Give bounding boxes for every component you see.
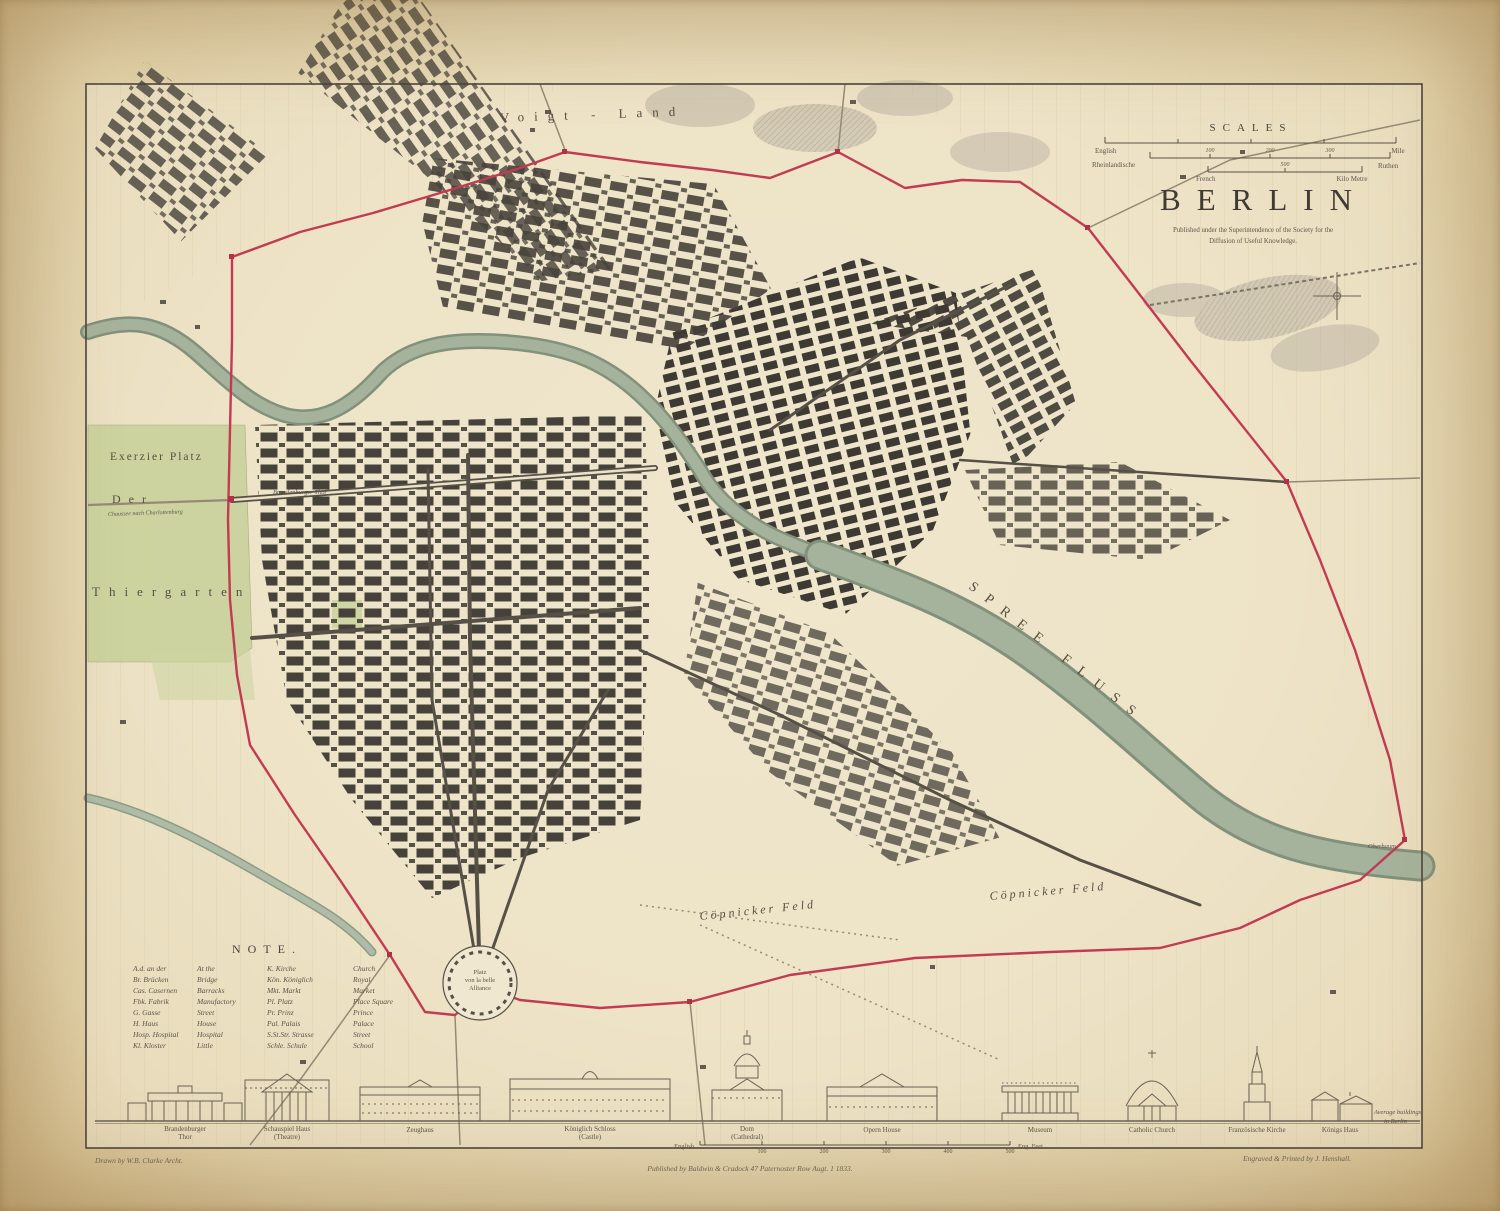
building-label: (Cathedral)	[731, 1133, 764, 1141]
feet-scale-tick: 500	[1006, 1149, 1015, 1155]
scales-heading: SCALES	[1210, 122, 1293, 134]
building-label: Thor	[178, 1133, 192, 1141]
building-label: (Castle)	[579, 1133, 602, 1141]
note-meaning: At the	[197, 964, 267, 973]
note-meaning: Little	[197, 1041, 267, 1050]
scale-metres-n1: 500	[1281, 162, 1290, 168]
label-der: Der	[112, 492, 154, 506]
scale-ruthen-n2: 200	[1266, 148, 1275, 154]
note-meaning: Barracks	[197, 986, 267, 995]
note-abbr: Mkt. Markt	[267, 986, 353, 995]
building-label: Museum	[1028, 1126, 1053, 1134]
note-abbr: H. Haus	[133, 1019, 197, 1028]
note-meaning: Prince	[353, 1008, 401, 1017]
note-abbr: G. Gasse	[133, 1008, 197, 1017]
note-abbr: A.d. an der	[133, 964, 197, 973]
building-label: Opern House	[863, 1126, 900, 1134]
note-abbr: Hosp. Hospital	[133, 1030, 197, 1039]
map-sheet: Voigt - Land Exerzier Platz Der Thiergar…	[0, 0, 1500, 1211]
scale-ruthen-left: Rheinlandische	[1092, 161, 1135, 169]
note-abbr: Cas. Casernen	[133, 986, 197, 995]
sduk-imprint-line1: Published under the Superintendence of t…	[1173, 227, 1333, 234]
note-heading: NOTE.	[133, 942, 401, 957]
note-meaning: School	[353, 1041, 401, 1050]
note-abbr: Pl. Platz	[267, 997, 353, 1006]
note-meaning: House	[197, 1019, 267, 1028]
sduk-imprint-line2: Diffusion of Useful Knowledge.	[1209, 238, 1297, 245]
credit-drawn-by: Drawn by W.B. Clarke Archt.	[95, 1156, 183, 1165]
note-meaning: Market	[353, 986, 401, 995]
note-meaning: Hospital	[197, 1030, 267, 1039]
note-meaning: Bridge	[197, 975, 267, 984]
scale-ruthen-right: Ruthen	[1378, 162, 1399, 170]
note-table: A.d. an derAt theK. KircheChurch Br. Brü…	[133, 964, 401, 1050]
map-title: BERLIN	[1160, 182, 1368, 217]
scale-english-left: English	[1095, 147, 1117, 155]
building-side-caption: Average buildings	[1373, 1109, 1422, 1116]
credit-engraved-by: Engraved & Printed by J. Henshall.	[1243, 1154, 1351, 1163]
building-label: Dom	[740, 1125, 755, 1133]
note-meaning: Church	[353, 964, 401, 973]
label-platz-line2: von la belle	[465, 977, 495, 984]
note-abbr: Br. Brücken	[133, 975, 197, 984]
feet-scale-tick: 200	[820, 1149, 829, 1155]
building-label: Französische Kirche	[1228, 1126, 1285, 1134]
feet-scale-tick: 300	[882, 1149, 891, 1155]
note-abbr: Kön. Königlich	[267, 975, 353, 984]
note-meaning: Street	[197, 1008, 267, 1017]
scale-english-right: Mile	[1391, 147, 1404, 155]
building-side-caption: in Berlin	[1384, 1118, 1407, 1125]
note-abbr: Pal. Palais	[267, 1019, 353, 1028]
note-meaning: Palace	[353, 1019, 401, 1028]
note-abbr: K. Kirche	[267, 964, 353, 973]
building-label: Brandenburger	[164, 1125, 207, 1133]
feet-scale-tick: 400	[944, 1149, 953, 1155]
note-meaning: Street	[353, 1030, 401, 1039]
feet-scale-right-label: Eng. Feet	[1018, 1143, 1043, 1150]
label-brandenburger-thor: Brandenburger Thor	[273, 489, 328, 496]
note-abbr: Fbk. Fabrik	[133, 997, 197, 1006]
label-platz-line3: Alliance	[469, 985, 491, 992]
note-meaning: Manufactory	[197, 997, 267, 1006]
building-label: Königlich Schloss	[564, 1125, 615, 1133]
building-label: (Theatre)	[274, 1133, 301, 1141]
note-meaning: Royal	[353, 975, 401, 984]
feet-scale-left-label: English	[674, 1143, 695, 1150]
scale-ruthen-n3: 300	[1325, 148, 1335, 154]
label-thiergarten: Thiergarten	[92, 584, 251, 599]
scale-ruthen-n1: 100	[1206, 148, 1215, 154]
note-legend: NOTE. A.d. an derAt theK. KircheChurch B…	[133, 942, 401, 1050]
label-platz-line1: Platz	[474, 969, 487, 976]
building-label: Zeughaus	[406, 1126, 433, 1134]
feet-scale-tick: 100	[758, 1149, 767, 1155]
publisher-imprint: Published by Baldwin & Cradock 47 Patern…	[450, 1164, 1050, 1173]
label-oberbaum: Oberbaum	[1368, 843, 1396, 850]
note-abbr: S.St.Str. Strasse	[267, 1030, 353, 1039]
note-abbr: Pr. Prinz	[267, 1008, 353, 1017]
note-meaning: Place Square	[353, 997, 401, 1006]
label-exerzier-platz: Exerzier Platz	[110, 451, 203, 463]
building-label: Königs Haus	[1322, 1126, 1359, 1134]
note-abbr: Schle. Schule	[267, 1041, 353, 1050]
note-abbr: Kl. Kloster	[133, 1041, 197, 1050]
building-label: Catholic Church	[1129, 1126, 1176, 1134]
building-label: Schauspiel Haus	[264, 1125, 311, 1133]
